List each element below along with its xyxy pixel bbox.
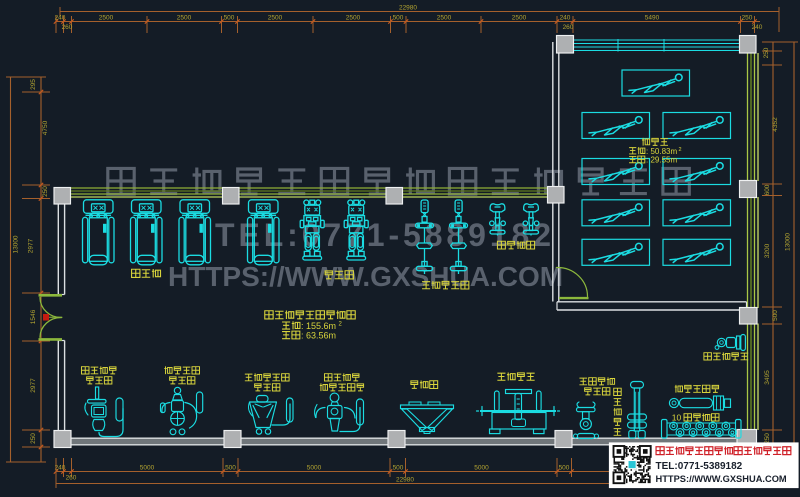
svg-text:2977: 2977	[30, 378, 37, 393]
svg-text:5000: 5000	[307, 465, 322, 472]
svg-text:500: 500	[393, 465, 404, 472]
svg-text:22980: 22980	[399, 5, 417, 12]
svg-text:1546: 1546	[30, 309, 37, 324]
svg-text:HTTPS://WWW.GXSHUA.COM: HTTPS://WWW.GXSHUA.COM	[168, 261, 563, 292]
svg-text:250: 250	[764, 433, 771, 444]
svg-text:260: 260	[62, 24, 73, 31]
svg-text:2500: 2500	[346, 15, 361, 22]
svg-text:2500: 2500	[99, 15, 114, 22]
svg-text:4352: 4352	[772, 117, 779, 132]
svg-text:240: 240	[560, 15, 571, 22]
svg-text:TEL:0771-5389182: TEL:0771-5389182	[656, 461, 743, 472]
svg-text:250: 250	[763, 47, 770, 58]
svg-text:250: 250	[742, 15, 753, 22]
svg-text:: 155.6m: : 155.6m	[301, 321, 336, 331]
svg-text:5000: 5000	[474, 465, 489, 472]
svg-text:2500: 2500	[177, 15, 192, 22]
svg-text:2977: 2977	[28, 238, 35, 253]
svg-text:13000: 13000	[785, 233, 792, 251]
svg-text:2500: 2500	[512, 15, 527, 22]
svg-text:250: 250	[30, 433, 37, 444]
svg-text:250: 250	[42, 186, 49, 197]
svg-text:5000: 5000	[140, 465, 155, 472]
svg-text:260: 260	[66, 475, 77, 482]
svg-text:10: 10	[672, 413, 682, 423]
svg-text:HTTPS://WWW.GXSHUA.COM: HTTPS://WWW.GXSHUA.COM	[656, 474, 787, 484]
svg-text:2: 2	[679, 147, 682, 153]
svg-text:: 63.56m: : 63.56m	[301, 331, 336, 341]
svg-text:3495: 3495	[764, 370, 771, 385]
svg-text:500: 500	[225, 465, 236, 472]
svg-text:240: 240	[55, 15, 66, 22]
svg-text:2500: 2500	[268, 15, 283, 22]
svg-text:13000: 13000	[13, 235, 20, 253]
svg-text:240: 240	[752, 24, 763, 31]
svg-text:500: 500	[772, 310, 779, 321]
svg-text:500: 500	[224, 15, 235, 22]
svg-text:3200: 3200	[764, 243, 771, 258]
svg-text:2500: 2500	[437, 15, 452, 22]
svg-text:600: 600	[764, 184, 771, 195]
svg-text:295: 295	[30, 79, 37, 90]
svg-text:TEL:0771-5889182: TEL:0771-5889182	[215, 217, 555, 253]
svg-text:22980: 22980	[396, 477, 414, 484]
svg-text:260: 260	[563, 24, 574, 31]
svg-text:: 29.55m: : 29.55m	[646, 156, 677, 165]
svg-text:: 50.83m: : 50.83m	[646, 147, 677, 156]
svg-text:5490: 5490	[645, 15, 660, 22]
svg-text:500: 500	[559, 465, 570, 472]
svg-text:500: 500	[393, 15, 404, 22]
svg-text:4750: 4750	[42, 120, 49, 135]
